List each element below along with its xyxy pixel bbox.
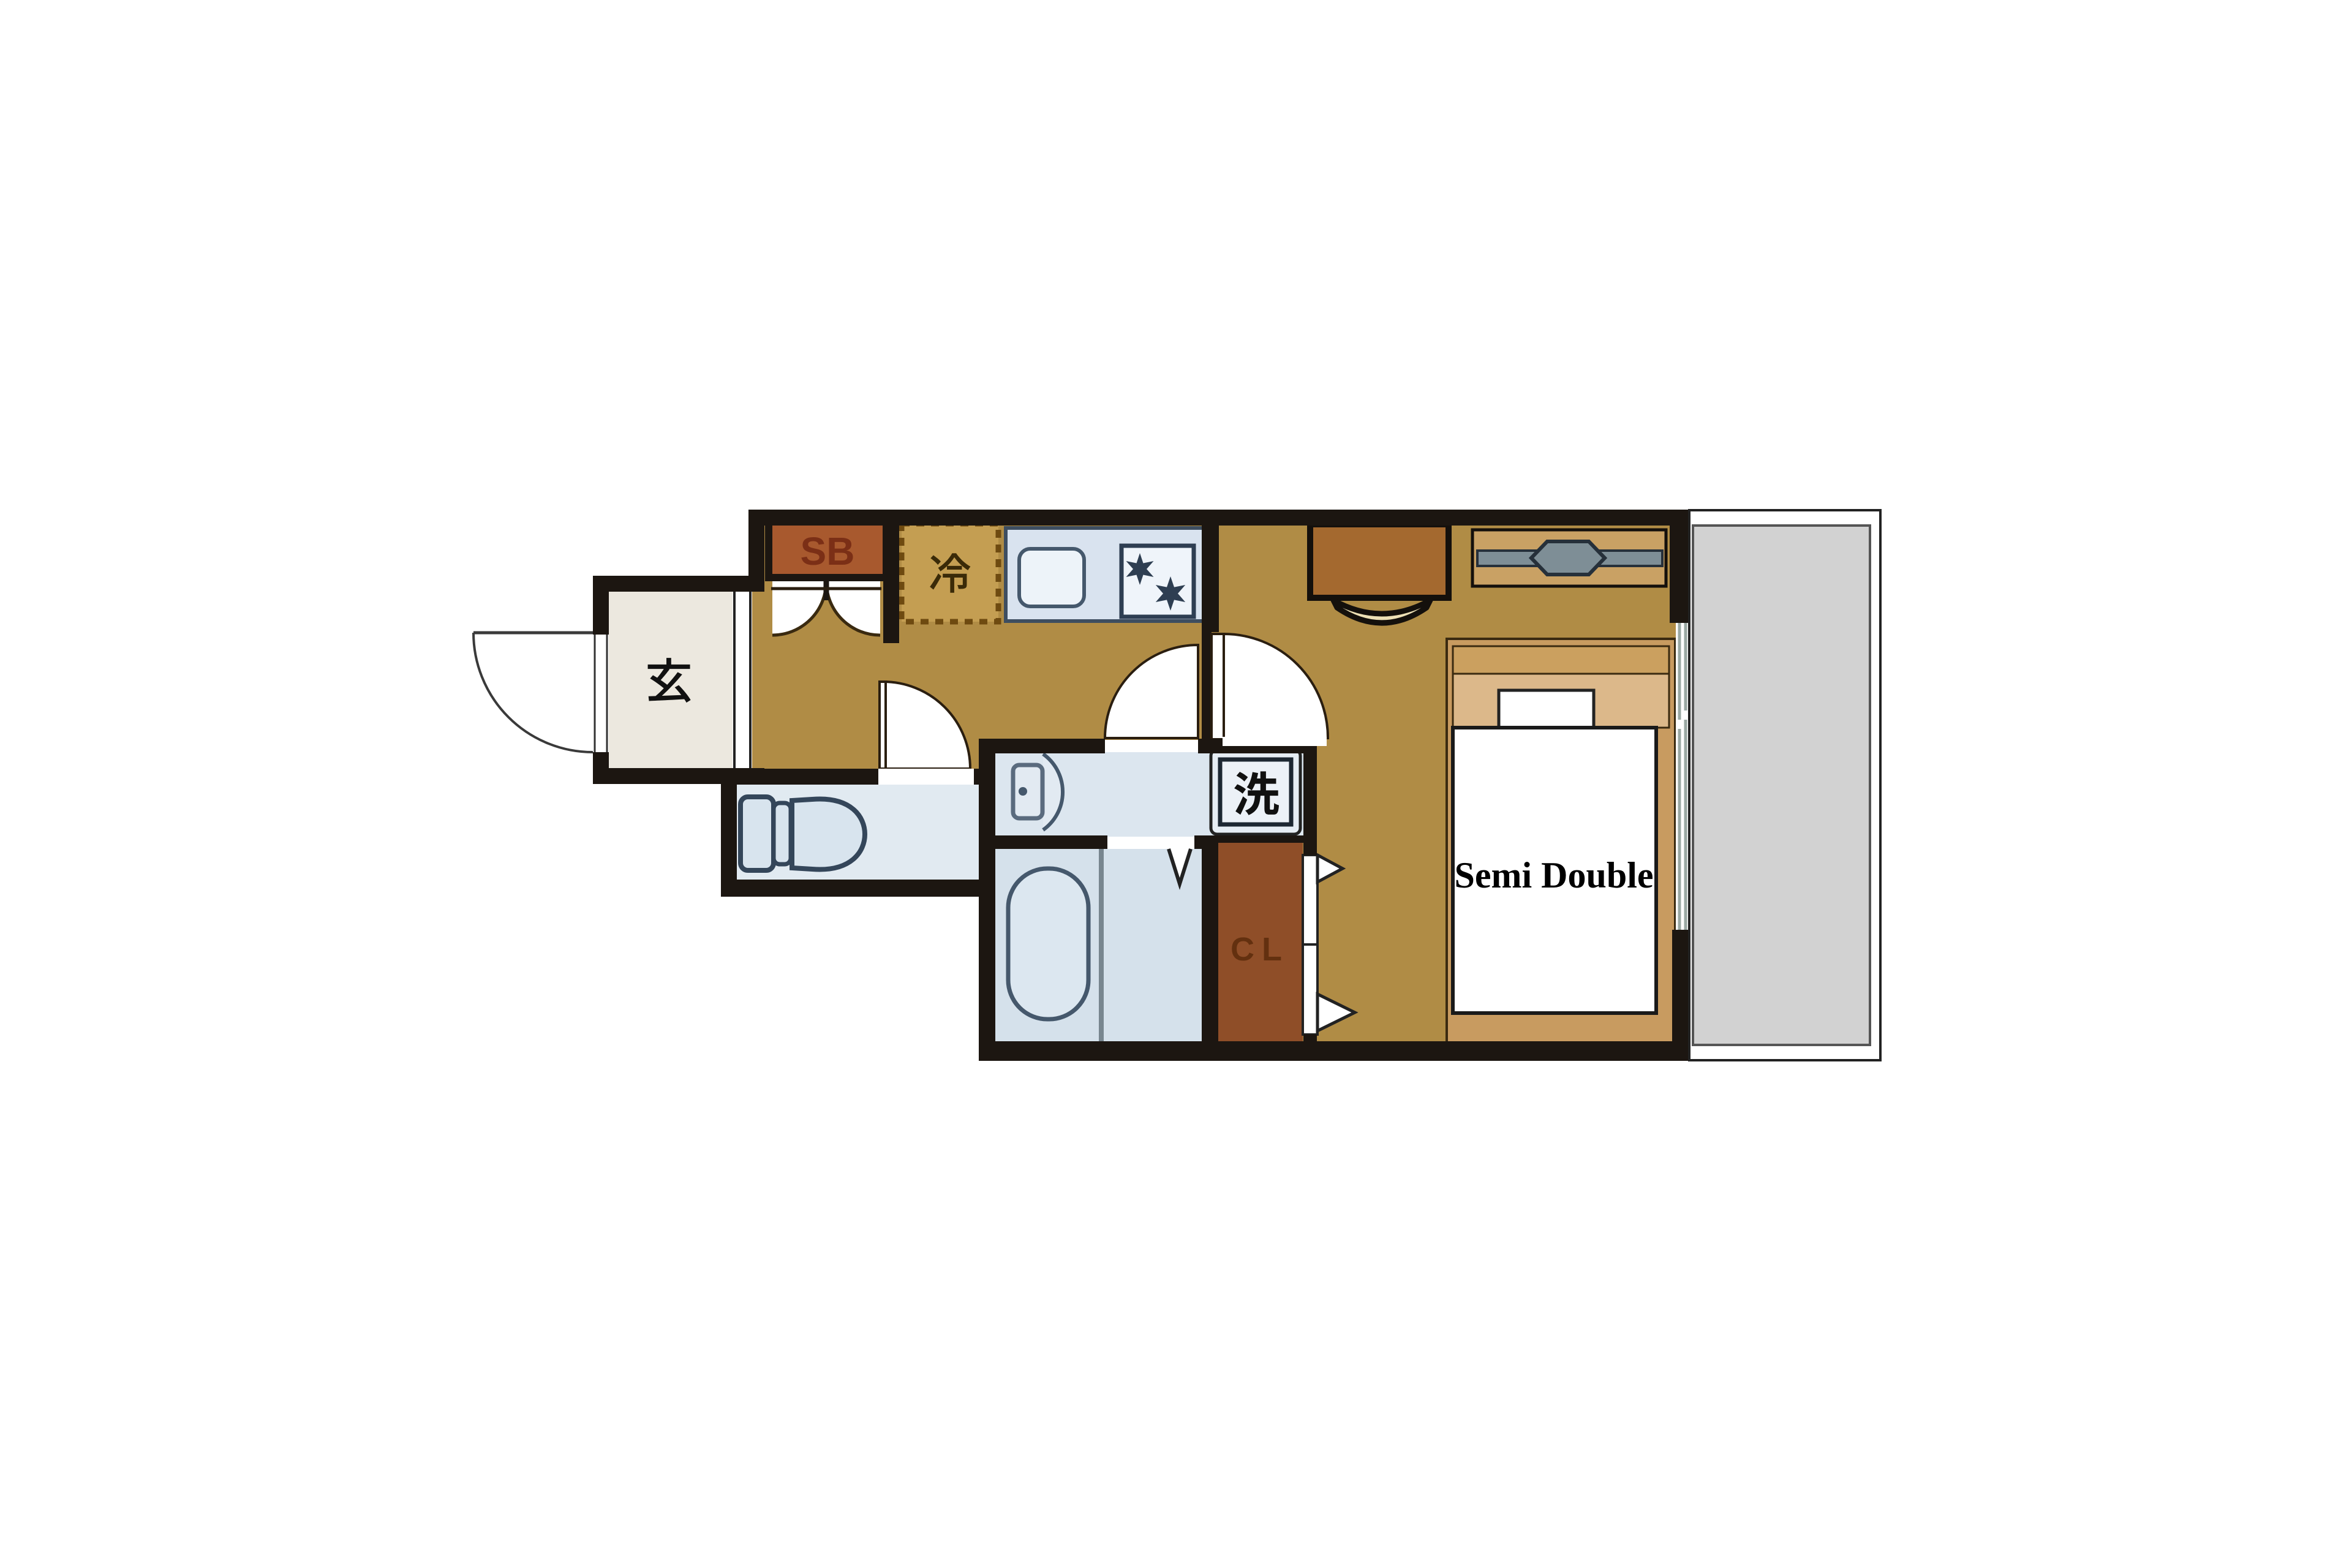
svg-text:SB: SB	[801, 529, 855, 573]
svg-text:Semi Double: Semi Double	[1454, 855, 1653, 895]
svg-text:CL: CL	[1231, 931, 1289, 968]
